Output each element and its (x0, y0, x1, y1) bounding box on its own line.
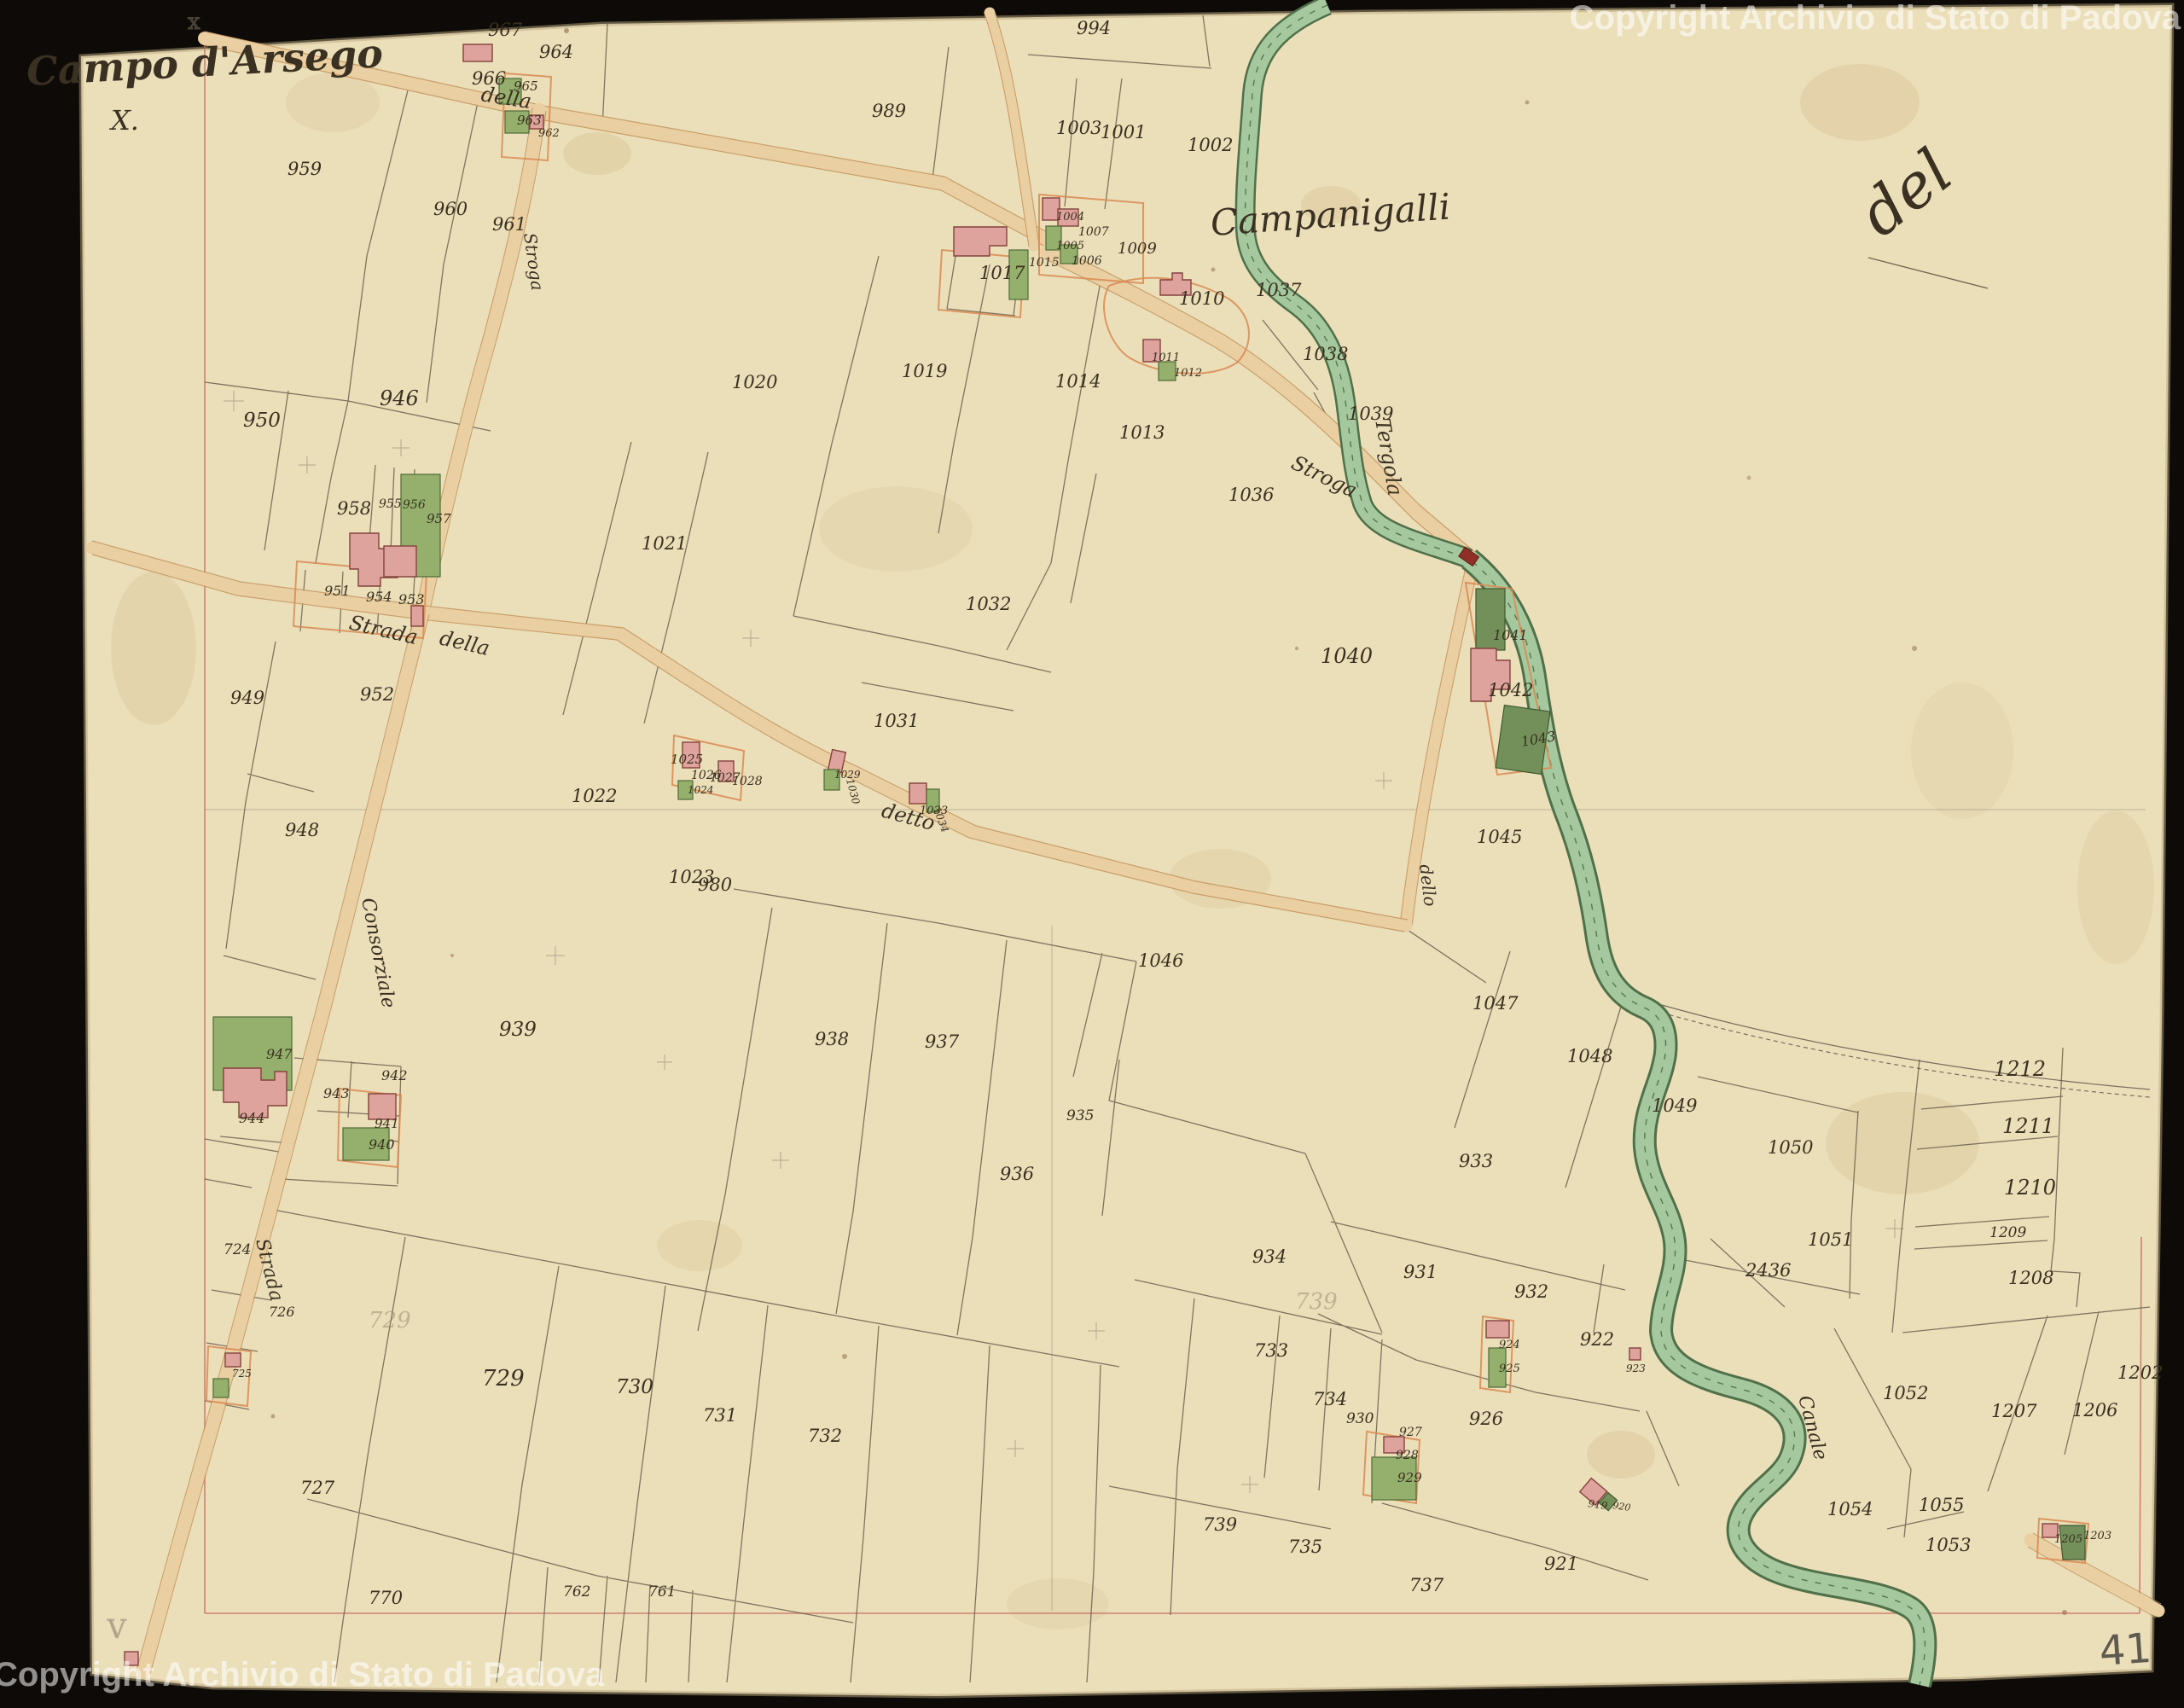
plabel-label-1050: 1050 (1768, 1137, 1813, 1158)
plabel-label-955: 955 (379, 497, 402, 511)
plabel-label-762: 762 (563, 1583, 590, 1601)
page-number: 41 (2098, 1624, 2153, 1676)
plabel-label-1012: 1012 (1174, 367, 1202, 380)
plabel-label-934: 934 (1252, 1246, 1287, 1267)
plabel-label-1019: 1019 (902, 361, 947, 381)
plabel-label-931: 931 (1403, 1262, 1438, 1282)
plabel-label-725: 725 (232, 1368, 252, 1380)
plabel-label-944: 944 (239, 1110, 265, 1126)
plabel-label-1209: 1209 (1989, 1224, 2026, 1241)
plabel-label-1205: 1205 (2054, 1533, 2082, 1546)
plabel-label-1024: 1024 (688, 784, 714, 796)
plabel-label-727: 727 (300, 1478, 335, 1498)
plabel-label-1021: 1021 (642, 533, 687, 554)
plabel-label-1053: 1053 (1926, 1535, 1971, 1555)
plabel-label-1202: 1202 (2117, 1362, 2163, 1383)
plabel-label-1042: 1042 (1488, 680, 1533, 700)
plabel-label-733: 733 (1254, 1340, 1288, 1361)
plabel-label-943: 943 (323, 1085, 350, 1101)
plabel-label-1004: 1004 (1056, 211, 1084, 224)
section-mark: X. (108, 104, 139, 137)
plabel-label-924: 924 (1499, 1339, 1520, 1351)
plabel-label-953: 953 (398, 591, 425, 607)
building-1033 (909, 783, 926, 804)
plabel-label-923: 923 (1626, 1362, 1646, 1374)
plabel-label-989: 989 (872, 101, 906, 121)
plabel-label-1051: 1051 (1808, 1229, 1853, 1250)
plabel-label-1052: 1052 (1883, 1383, 1928, 1403)
plabel-label-946: 946 (380, 386, 419, 410)
corner-mark-bottom: V (107, 1615, 127, 1645)
plabel-label-735: 735 (1288, 1537, 1322, 1557)
plabel-label-932: 932 (1514, 1281, 1548, 1302)
plabel-label-1203: 1203 (2083, 1530, 2111, 1542)
building-923 (1629, 1348, 1641, 1360)
plabel-label-730: 730 (616, 1376, 653, 1398)
plabel-label-731: 731 (703, 1405, 737, 1426)
plabel-label-739: 739 (1203, 1514, 1237, 1535)
watermark-bottom-left: Copyright Archivio di Stato di Padova (0, 1656, 605, 1693)
plabel-label-1055: 1055 (1919, 1495, 1964, 1515)
plabel-label-1032: 1032 (966, 594, 1011, 614)
plabel-label-940: 940 (369, 1136, 395, 1153)
cadastral-map-svg: Campo d'Arsego X. x V del 41 Copyright A… (0, 0, 2184, 1708)
plabel-label-1036: 1036 (1228, 485, 1274, 505)
corner-mark-top: x (188, 9, 200, 35)
plabel-label-927: 927 (1399, 1426, 1422, 1439)
plabel-label-941: 941 (375, 1116, 399, 1131)
plabel-label-980: 980 (698, 874, 732, 895)
plabel-label-935: 935 (1066, 1107, 1094, 1124)
plabel-label-1014: 1014 (1055, 371, 1101, 392)
plabel-label-938: 938 (815, 1029, 849, 1049)
plabel-label-926: 926 (1469, 1409, 1503, 1429)
plabel-label-952: 952 (360, 684, 394, 705)
plabel-label-1025: 1025 (671, 752, 703, 767)
plabel-label-1013: 1013 (1119, 422, 1165, 443)
plabel-label-956: 956 (403, 498, 426, 512)
building-966 (463, 44, 492, 61)
plabel-label-1017: 1017 (979, 263, 1025, 283)
plabel-label-2436: 2436 (1745, 1260, 1791, 1281)
plabel-label-1045: 1045 (1477, 827, 1522, 847)
plabel-label-961: 961 (492, 214, 526, 235)
plabel-label-1207: 1207 (1991, 1401, 2037, 1421)
plabel-label-951: 951 (324, 583, 351, 599)
plabel-label-1002: 1002 (1188, 135, 1233, 155)
plabel-label-1009: 1009 (1118, 240, 1157, 258)
plabel-label-950: 950 (243, 410, 281, 432)
plabel-label-954: 954 (366, 589, 392, 605)
plabel-label-770: 770 (369, 1588, 403, 1608)
plabel-label-732: 732 (808, 1426, 842, 1446)
plabel-label-1015: 1015 (1029, 256, 1060, 270)
plabel-label-958: 958 (337, 498, 371, 519)
scanned-map-sheet: Campo d'Arsego X. x V del 41 Copyright A… (0, 0, 2184, 1708)
plabel-label-729: 729 (482, 1366, 525, 1391)
plabel-label-1022: 1022 (572, 786, 617, 806)
plabel-label-1001: 1001 (1101, 122, 1146, 142)
plabel-label-726: 726 (269, 1304, 295, 1320)
plabel-label-1048: 1048 (1567, 1046, 1612, 1066)
plabel-label-964: 964 (539, 42, 573, 62)
building-725 (225, 1353, 241, 1367)
plabel-label-1054: 1054 (1827, 1499, 1873, 1519)
plabel-label-947: 947 (266, 1046, 293, 1062)
plabel-label-1210: 1210 (2004, 1176, 2056, 1200)
plabel-label-929: 929 (1397, 1470, 1422, 1485)
plabel-label-1206: 1206 (2072, 1400, 2117, 1420)
ghost-label-729: 729 (369, 1308, 411, 1333)
building-953b (411, 606, 423, 626)
plabel-label-1049: 1049 (1652, 1095, 1697, 1116)
plabel-label-949: 949 (230, 688, 264, 708)
plabel-label-734: 734 (1313, 1389, 1347, 1409)
plabel-label-1028: 1028 (732, 775, 763, 788)
plabel-label-1003: 1003 (1056, 118, 1101, 138)
plabel-label-930: 930 (1346, 1410, 1374, 1427)
plabel-label-967: 967 (488, 20, 523, 40)
building-953 (384, 546, 416, 577)
plabel-label-922: 922 (1580, 1329, 1614, 1350)
plabel-label-948: 948 (285, 820, 319, 840)
plabel-label-1037: 1037 (1256, 280, 1302, 300)
plabel-label-921: 921 (1544, 1554, 1578, 1574)
plabel-label-963: 963 (517, 113, 542, 128)
plabel-label-1212: 1212 (1994, 1057, 2046, 1081)
plabel-label-1046: 1046 (1138, 950, 1183, 971)
plabel-label-1031: 1031 (874, 711, 919, 731)
paper-sheet (81, 5, 2172, 1696)
garden-726 (213, 1379, 229, 1397)
plabel-label-939: 939 (499, 1019, 537, 1041)
plabel-label-1011: 1011 (1152, 351, 1180, 364)
ghost-label-739: 739 (1295, 1289, 1338, 1315)
plabel-label-1006: 1006 (1072, 254, 1102, 268)
plabel-label-1047: 1047 (1472, 993, 1519, 1014)
plabel-label-942: 942 (381, 1067, 408, 1083)
plabel-label-724: 724 (224, 1241, 251, 1258)
plabel-label-936: 936 (1000, 1164, 1034, 1184)
plabel-label-925: 925 (1499, 1362, 1520, 1375)
plabel-label-1020: 1020 (732, 372, 777, 392)
plabel-label-1040: 1040 (1321, 644, 1373, 668)
plabel-label-928: 928 (1396, 1449, 1419, 1462)
building-924 (1486, 1321, 1509, 1338)
plabel-label-962: 962 (538, 127, 560, 140)
plabel-label-1038: 1038 (1303, 344, 1348, 364)
plabel-label-1005: 1005 (1056, 240, 1084, 253)
garden-1012 (1159, 362, 1176, 381)
plabel-label-960: 960 (433, 199, 468, 219)
plabel-label-1007: 1007 (1078, 225, 1109, 239)
plabel-label-937: 937 (925, 1031, 960, 1052)
plabel-label-959: 959 (288, 159, 322, 179)
plabel-label-994: 994 (1077, 18, 1111, 38)
plabel-label-1010: 1010 (1179, 288, 1224, 309)
plabel-label-957: 957 (427, 511, 451, 526)
plabel-label-761: 761 (648, 1583, 676, 1601)
plabel-label-1208: 1208 (2008, 1268, 2053, 1288)
plabel-label-1041: 1041 (1493, 627, 1528, 643)
plabel-label-933: 933 (1459, 1151, 1493, 1171)
watermark-top-right: Copyright Archivio di Stato di Padova (1570, 0, 2181, 37)
plabel-label-737: 737 (1409, 1575, 1444, 1595)
plabel-label-1211: 1211 (2002, 1114, 2054, 1138)
